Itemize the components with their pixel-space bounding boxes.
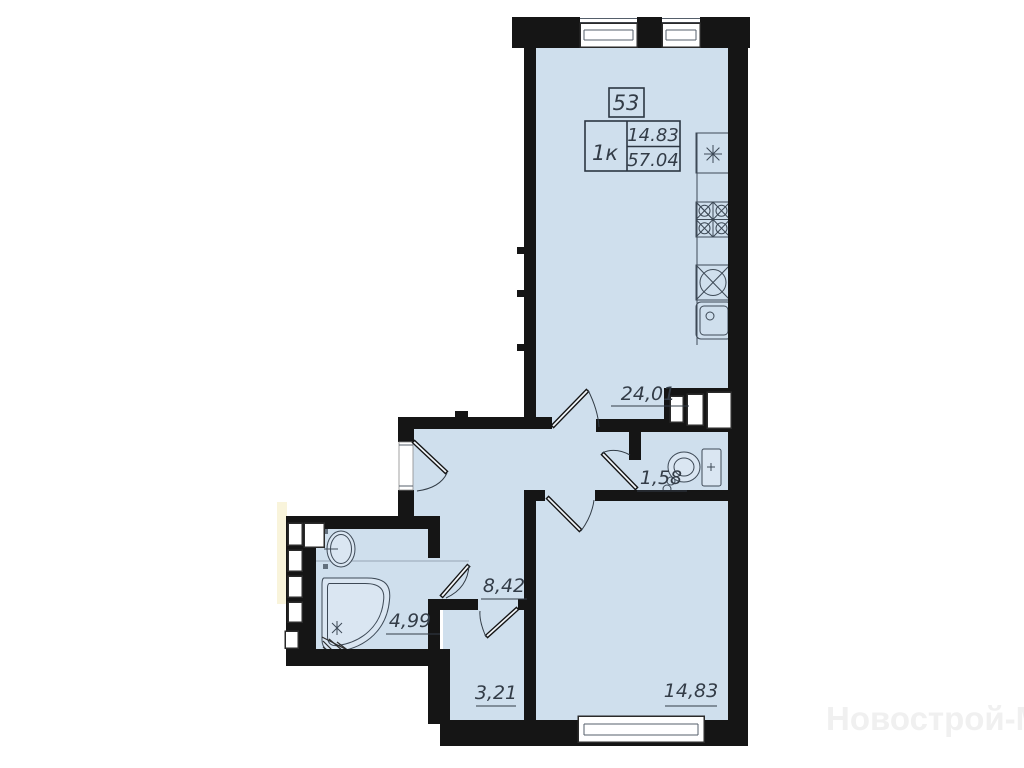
window-top-right [662, 17, 700, 47]
room-kitchen-living [530, 25, 735, 435]
watermark: Новострой-М [826, 700, 1024, 738]
floor-plan: 24,01 1,58 8,42 4,99 3,21 14,83 53 1к 14… [0, 0, 1024, 768]
label-toilet: 1,58 [640, 467, 682, 489]
floor-plan-drawing: 24,01 1,58 8,42 4,99 3,21 14,83 53 1к 14… [0, 0, 1024, 768]
entrance-threshold [399, 442, 413, 490]
room-corridor [443, 599, 530, 727]
label-corridor: 3,21 [475, 682, 517, 704]
label-bathroom: 4,99 [389, 610, 431, 632]
label-living: 14,83 [664, 680, 718, 702]
window-bottom [578, 716, 704, 742]
apartment-number: 53 [613, 91, 640, 115]
vent-star-icon [704, 145, 722, 163]
outside-strip [277, 502, 287, 604]
legend-total-area: 57.04 [627, 150, 679, 171]
window-top-left [580, 17, 637, 47]
vent-shaft [670, 392, 731, 428]
cooktop-icon [696, 202, 730, 237]
label-hallway: 8,42 [483, 575, 525, 597]
legend-living-area: 14.83 [627, 125, 679, 146]
legend-rooms: 1к [592, 141, 618, 165]
label-kitchen-living: 24,01 [621, 383, 675, 405]
